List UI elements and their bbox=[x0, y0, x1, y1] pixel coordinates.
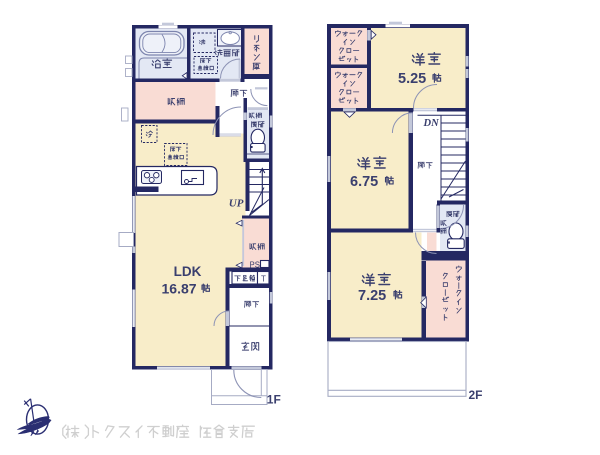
svg-text:T: T bbox=[261, 275, 266, 284]
svg-text:6.75: 6.75 bbox=[350, 174, 378, 190]
svg-text:DN: DN bbox=[423, 118, 440, 129]
svg-text:1F: 1F bbox=[267, 393, 281, 407]
svg-text:PS: PS bbox=[250, 261, 260, 270]
svg-text:2F: 2F bbox=[469, 388, 483, 402]
svg-text:16.87: 16.87 bbox=[162, 281, 197, 297]
svg-text:LDK: LDK bbox=[174, 264, 202, 279]
svg-text:7.25: 7.25 bbox=[358, 288, 386, 304]
svg-text:5.25: 5.25 bbox=[398, 71, 426, 87]
svg-text:UP: UP bbox=[229, 198, 244, 210]
